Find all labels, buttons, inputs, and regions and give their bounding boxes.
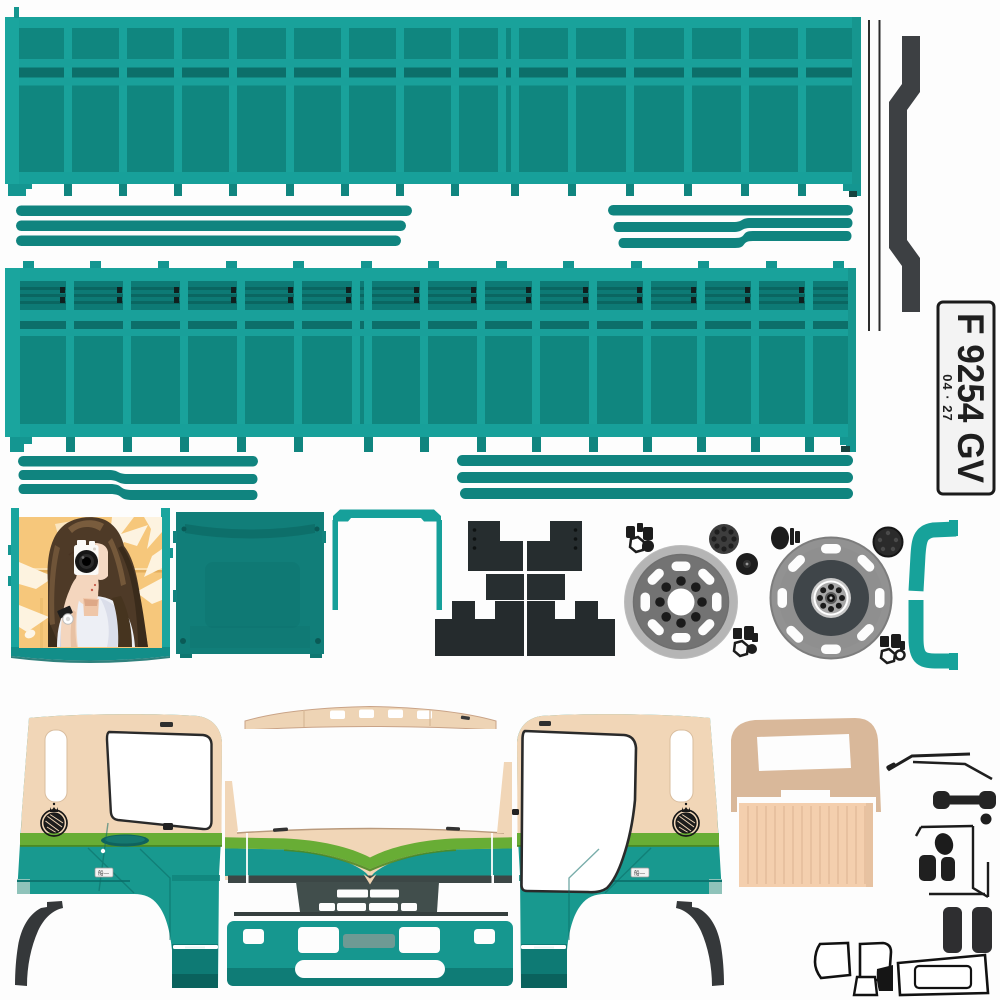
svg-text:船—: 船— xyxy=(98,869,110,877)
svg-text:F 9254 GV: F 9254 GV xyxy=(950,313,991,483)
svg-text:船—: 船— xyxy=(634,869,646,877)
svg-text:04 · 27: 04 · 27 xyxy=(940,374,955,421)
